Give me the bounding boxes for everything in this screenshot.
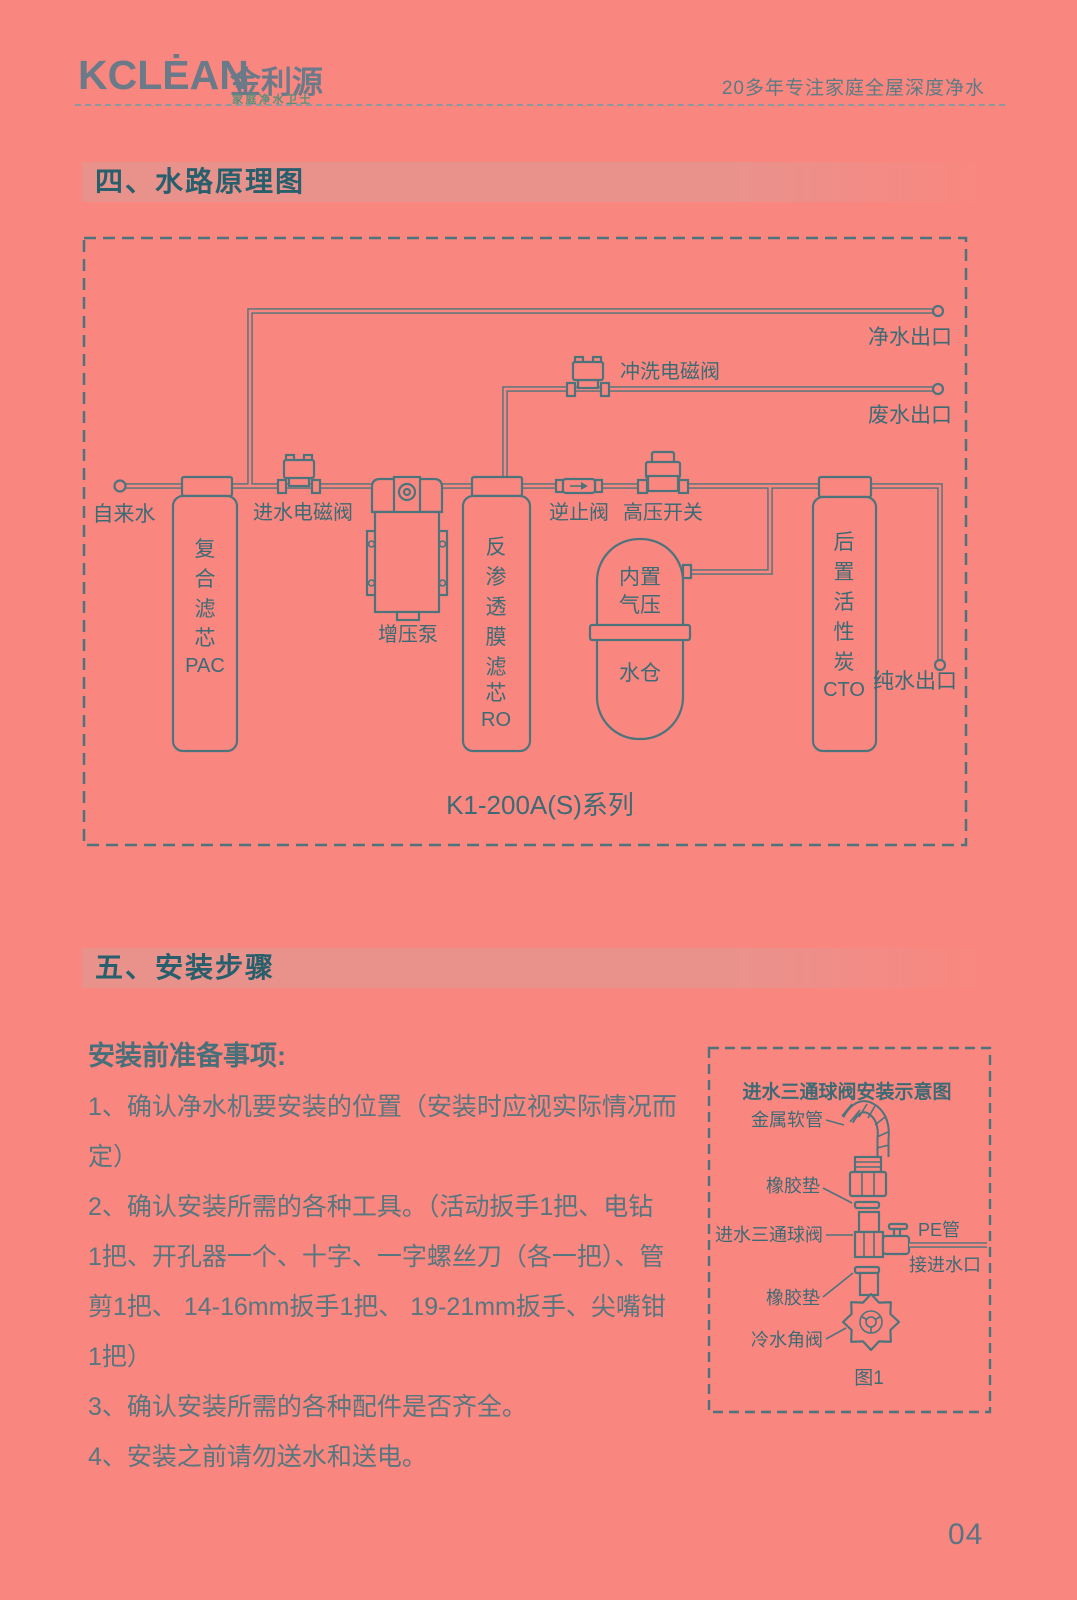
section5-title-bar: 五、安装步骤 [82,948,987,988]
clean-water-pipe [250,311,934,486]
section4-title-bar: 四、水路原理图 [82,162,987,202]
metal-hose-label: 金属软管 [751,1110,823,1130]
manual-page: { "header": { "logo_text": "KCLĖAN", "lo… [0,0,1077,1600]
clean-outlet-fitting [933,306,943,316]
install-line: 1、确认净水机要安装的位置（安装时应视实际情况而 [88,1082,703,1132]
check-valve-icon [556,479,602,493]
install-line: 3、确认安装所需的各种配件是否齐全。 [88,1382,703,1432]
pac-char: 合 [195,568,216,591]
hp-switch-icon [638,452,688,493]
cto-char: 后 [834,531,855,554]
water-circuit-diagram: 复 合 滤 芯 PAC 进水电磁阀 增压泵 反 渗 透 膜 [82,236,968,848]
pac-label-code: PAC [185,655,225,677]
install-line: 1把、开孔器一个、十字、一字螺丝刀（各一把）、管 [88,1232,703,1282]
header-tagline: 20多年专注家庭全屋深度净水 [722,73,985,100]
ro-label-code: RO [481,709,511,731]
ro-char: 膜 [486,626,507,649]
tap-water-label: 自来水 [93,503,156,526]
tank-text: 水仓 [619,662,661,685]
rubber-gasket2-pointer [823,1273,853,1297]
install-line: 剪1把、 14-16mm扳手1把、 19-21mm扳手、尖嘴钳 [88,1282,703,1332]
waste-outlet-label: 废水出口 [868,404,952,427]
cto-char: 炭 [834,651,855,674]
inlet-valve-label: 进水电磁阀 [253,501,353,524]
tank-pipe [682,486,770,572]
pac-char: 滤 [195,598,216,621]
brand-logo-text: KCLĖAN [78,52,249,99]
hose-connector-icon [850,1157,886,1196]
header-divider [75,104,1005,106]
pe-pipe-label: PE管 [918,1220,960,1240]
install-line: 定） [88,1132,703,1182]
cto-char: 活 [834,591,855,614]
install-line: 1把） [88,1332,703,1382]
check-valve-label: 逆止阀 [549,501,609,524]
pac-char: 复 [195,538,216,561]
pac-filter: 复 合 滤 芯 PAC [173,477,237,751]
install-line: 2、确认安装所需的各种工具。（活动扳手1把、电钻 [88,1182,703,1232]
metal-hose-pointer [826,1120,844,1125]
rubber-gasket2-label: 橡胶垫 [766,1288,820,1308]
cold-water-angle-valve-icon [843,1273,899,1350]
metal-hose-icon [842,1104,889,1157]
pac-char: 芯 [195,627,216,650]
install-preparation-text: 安装前准备事项: 1、确认净水机要安装的位置（安装时应视实际情况而 定） 2、确… [88,1030,703,1482]
page-number: 04 [948,1518,983,1552]
series-caption: K1-200A(S)系列 [446,790,634,820]
figure1-caption: 图1 [854,1368,884,1389]
install-line: 4、安装之前请勿送水和送电。 [88,1432,703,1482]
rubber-gasket1-pointer [823,1188,852,1203]
cto-label-code: CTO [823,679,865,701]
ro-char: 滤 [486,656,507,679]
install-heading: 安装前准备事项: [88,1030,703,1082]
waste-outlet-fitting [933,384,943,394]
tank-text: 内置 [619,566,661,589]
rubber-gasket1-label: 橡胶垫 [766,1176,820,1196]
flush-valve-label: 冲洗电磁阀 [620,360,720,383]
booster-pump-icon [367,477,447,620]
section5-title: 五、安装步骤 [95,952,275,983]
rubber-gasket1-icon [855,1202,879,1208]
section4-title: 四、水路原理图 [95,166,305,197]
cold-water-angle-valve-pointer [826,1328,846,1339]
pure-outlet-fitting [935,660,945,670]
ro-char: 透 [486,596,507,619]
ro-char: 反 [486,536,507,559]
cto-char: 置 [834,561,855,584]
ro-char: 芯 [486,682,507,705]
ro-char: 渗 [486,566,507,589]
pressure-tank: 内置 气压 水仓 [590,539,691,739]
pure-outlet-label: 纯水出口 [873,670,957,693]
tee-ball-valve-label: 进水三通球阀 [715,1225,823,1245]
hp-switch-label: 高压开关 [623,501,703,524]
tank-text: 气压 [619,594,661,617]
tap-water-inlet-fitting [115,481,126,492]
clean-outlet-label: 净水出口 [868,326,952,349]
to-water-inlet-label: 接进水口 [909,1255,981,1275]
inset-title: 进水三通球阀安装示意图 [742,1080,951,1103]
pump-label: 增压泵 [378,623,438,646]
cold-water-angle-valve-label: 冷水角阀 [751,1330,823,1350]
ro-filter: 反 渗 透 膜 滤 芯 RO [463,477,530,751]
cto-filter: 后 置 活 性 炭 CTO [813,477,876,751]
tee-valve-install-diagram: 进水三通球阀安装示意图 金属软管 橡胶垫 进水三通球阀 [695,1040,995,1420]
cto-char: 性 [834,621,855,644]
